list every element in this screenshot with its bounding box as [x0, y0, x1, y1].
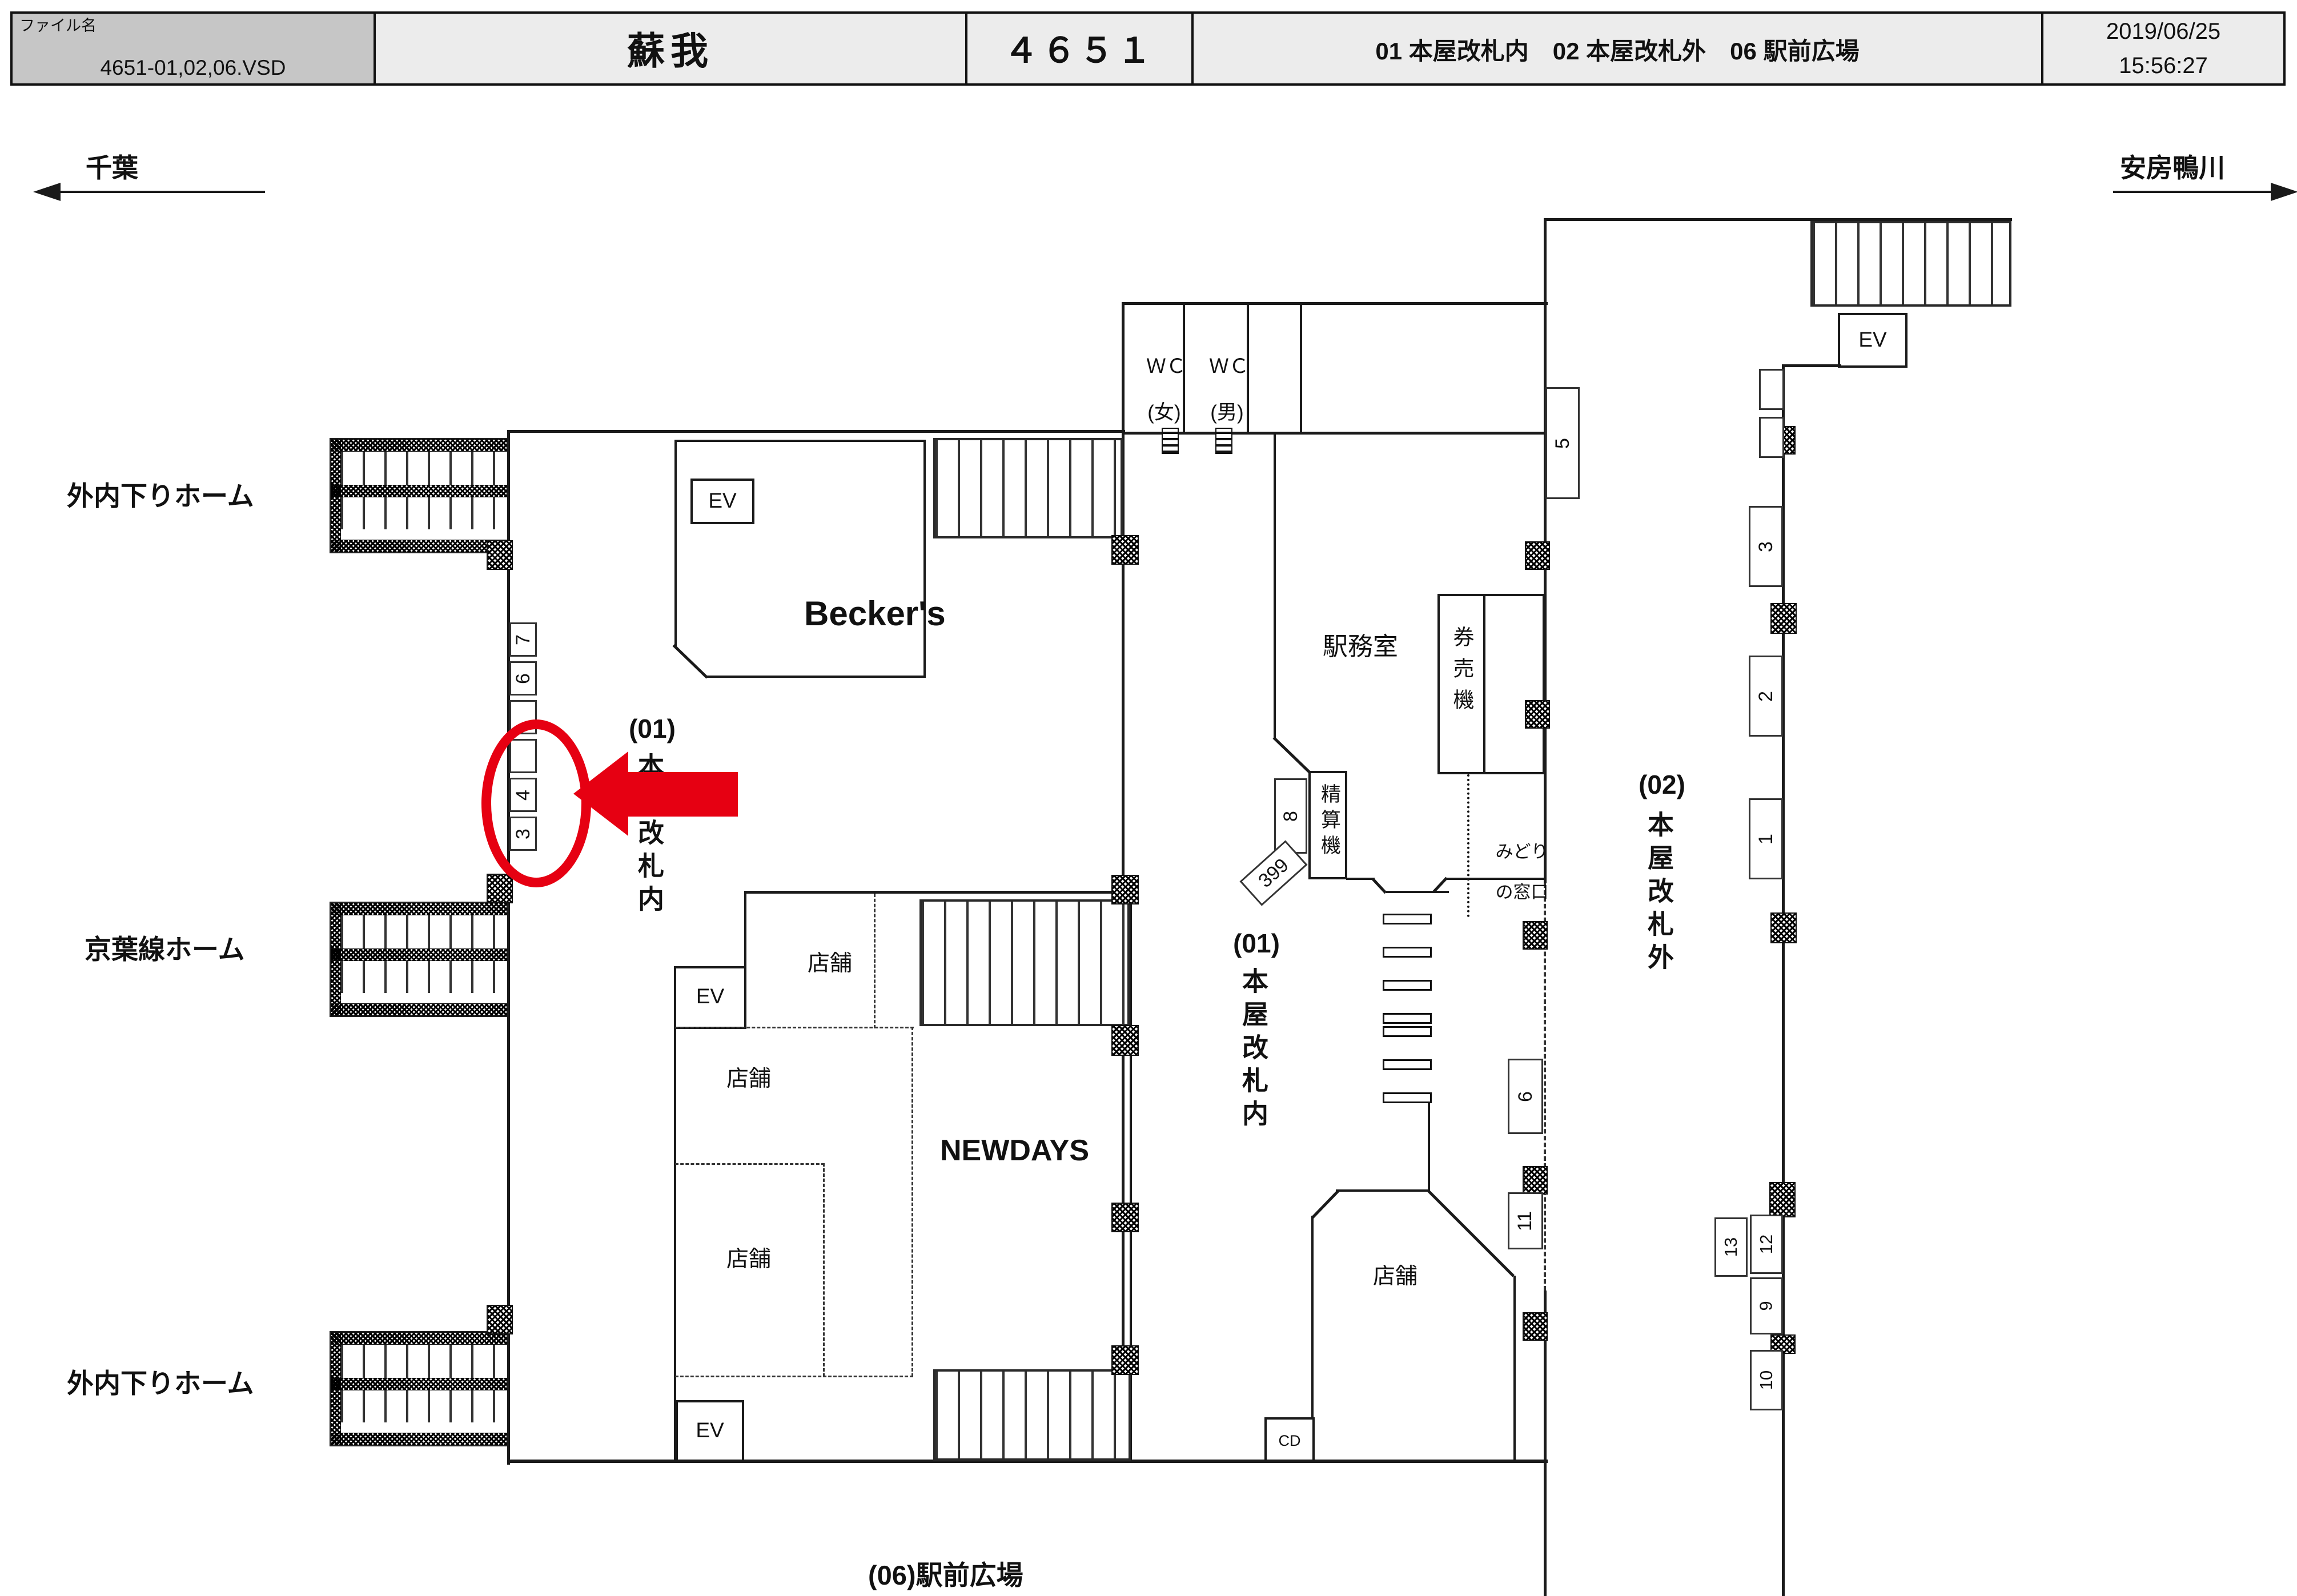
awakamogawa-arrow-head — [2271, 183, 2297, 201]
ticket-gate-bar — [1383, 1092, 1432, 1103]
wall-wc-bottom — [1122, 432, 1548, 435]
hatch — [1523, 921, 1548, 950]
ticket-gate-bar — [1383, 1013, 1432, 1024]
wc-door-hatch-2 — [1215, 428, 1232, 454]
stair-hatch-band — [331, 1378, 507, 1390]
stairs-bottom-middle — [933, 1369, 1131, 1461]
stairs-top-middle — [933, 438, 1123, 538]
ev-box-bottom: EV — [676, 1400, 744, 1462]
area01-left-number: (01) — [616, 714, 689, 744]
beckers-label: Becker's — [804, 594, 946, 633]
wc-women-text: (女) — [1147, 401, 1180, 424]
position-box-1: 1 — [1749, 798, 1783, 879]
wc-text: ＷＣ — [1209, 355, 1249, 377]
hatch — [1111, 1345, 1139, 1375]
partition-v1 — [874, 894, 876, 1028]
header-time: 15:56:27 — [2043, 53, 2283, 79]
partition-h3 — [675, 1376, 913, 1377]
midori-line1: みどり — [1495, 842, 1548, 862]
stairs-top-right — [1810, 221, 2011, 307]
beckers-wall-top — [674, 440, 926, 442]
header-locations-cell: 01 本屋改札内 02 本屋改札外 06 駅前広場 — [1191, 11, 2043, 86]
office-label: 駅務室 — [1323, 633, 1398, 662]
wall-midblock-bottom-2 — [1386, 891, 1449, 893]
stairs-lower-block — [919, 899, 1130, 1026]
position-box-6-mid: 6 — [1508, 1059, 1543, 1134]
lowerblock-wall-top — [744, 891, 1132, 894]
area01-mid-number: (01) — [1220, 928, 1293, 959]
position-6: 6 — [512, 673, 534, 684]
position-box-unlabeled-1 — [1759, 369, 1784, 410]
partition-v3 — [911, 1027, 913, 1377]
file-label: ファイル名 — [19, 17, 97, 35]
position-box-8: 8 — [1274, 778, 1307, 854]
chiba-arrow-head — [33, 183, 61, 201]
gate-connector — [1428, 1103, 1430, 1192]
midori-dotted — [1467, 774, 1469, 917]
header-date: 2019/06/25 — [2043, 18, 2283, 45]
wall-ev-shelf — [1782, 364, 1841, 367]
stair-treads — [341, 915, 507, 948]
shop-label-3: 店舗 — [726, 1247, 771, 1273]
direction-awakamogawa: 安房鴨川 — [2120, 153, 2225, 183]
ev-label: EV — [676, 984, 744, 1009]
shopbr-wall-top — [1336, 1189, 1430, 1192]
beckers-chamfer — [673, 644, 708, 679]
stair-hatch-band — [331, 1003, 507, 1016]
ticket-gate-bar — [1383, 980, 1432, 991]
position-box-5: 5 — [1545, 387, 1580, 499]
hatch — [1111, 1203, 1139, 1232]
midori-label: みどり の窓口 — [1476, 821, 1544, 923]
position-2: 2 — [1754, 691, 1777, 702]
office-wall-left — [1274, 434, 1276, 738]
position-box-11: 11 — [1508, 1192, 1543, 1249]
stair-treads — [341, 452, 507, 485]
office-chamfer — [1273, 737, 1311, 774]
hatch — [1770, 603, 1797, 634]
stair-treads — [341, 1390, 507, 1422]
header-station-cell: 蘇我 — [374, 11, 967, 86]
highlight-arrow-head — [573, 751, 628, 836]
midori-line2: の窓口 — [1495, 882, 1548, 902]
ticket-gate-bar — [1383, 1059, 1432, 1070]
chiba-arrow-line — [59, 191, 265, 193]
shopbr-diagonal — [1427, 1189, 1514, 1277]
stairs-platform-bottom — [330, 1331, 508, 1446]
position-box-3-right: 3 — [1749, 506, 1783, 587]
file-name: 4651-01,02,06.VSD — [13, 56, 374, 81]
partition-h2 — [675, 1163, 825, 1165]
position-1: 1 — [1754, 834, 1777, 845]
hatch — [487, 540, 513, 570]
area01-mid-text: 本屋改札内 — [1235, 967, 1272, 1133]
position-box-10: 10 — [1750, 1350, 1783, 1410]
shop-label-1: 店舗 — [808, 951, 852, 977]
newdays-label: NEWDAYS — [940, 1134, 1089, 1168]
position-12: 12 — [1756, 1235, 1777, 1254]
wall-midblock-bottom-1 — [1346, 878, 1375, 880]
position-10: 10 — [1756, 1370, 1777, 1390]
header-number-cell: ４６５１ — [965, 11, 1194, 86]
gate-recess-chamfer-l — [1371, 878, 1387, 894]
position-5: 5 — [1551, 438, 1573, 449]
stair-hatch-band — [331, 1332, 507, 1345]
position-box-unlabeled-2 — [1759, 417, 1784, 458]
ticket-machine-label: 券売機 — [1446, 626, 1477, 720]
cd-box: CD — [1264, 1417, 1315, 1462]
wall-midblock-bottom-3 — [1447, 878, 1545, 880]
wall-wc-top — [1122, 302, 1548, 305]
area02-text: 本屋改札外 — [1640, 811, 1678, 976]
hatch — [1769, 1182, 1796, 1217]
position-399: 399 — [1254, 854, 1293, 893]
platform-label-keiyo: 京葉線ホーム — [85, 934, 245, 965]
area02-number: (02) — [1625, 770, 1698, 800]
sheet-number: ４６５１ — [967, 31, 1191, 70]
awakamogawa-arrow-line — [2113, 191, 2273, 193]
hatch — [1111, 1025, 1139, 1056]
ticket-gate-bar — [1383, 914, 1432, 924]
header-file-cell: ファイル名 4651-01,02,06.VSD — [10, 11, 376, 86]
lowerblock-wall-topleft — [744, 891, 746, 968]
cd-label: CD — [1267, 1432, 1312, 1450]
plaza-label: (06)駅前広場 — [868, 1560, 1023, 1591]
platform-label-top: 外内下りホーム — [67, 481, 254, 512]
wc-men-text: (男) — [1210, 401, 1243, 424]
stairs-platform-top — [330, 438, 508, 553]
stair-treads — [341, 961, 507, 993]
fare-adjust-label: 精算機 — [1315, 783, 1344, 861]
partition-v2 — [823, 1163, 825, 1377]
ticket-gate-bar — [1383, 1026, 1432, 1037]
hatch — [1111, 535, 1139, 565]
stair-hatch-band — [331, 540, 507, 552]
hatch — [1525, 700, 1550, 729]
beckers-wall-right — [923, 440, 926, 678]
position-box-12: 12 — [1750, 1215, 1783, 1274]
ev-label: EV — [1840, 328, 1905, 352]
position-box-13: 13 — [1714, 1217, 1748, 1277]
beckers-wall-left — [674, 440, 677, 646]
partition-h1 — [675, 1027, 914, 1028]
direction-chiba: 千葉 — [86, 153, 138, 183]
shop-label-2: 店舗 — [726, 1067, 771, 1092]
ticket-machine-divider — [1483, 594, 1485, 774]
hatch — [1525, 541, 1550, 570]
wall-wc-div3 — [1300, 302, 1302, 435]
stair-hatch-band — [331, 948, 507, 961]
header-date-cell: 2019/06/25 15:56:27 — [2041, 11, 2286, 86]
ev-box-beckers: EV — [690, 479, 754, 524]
highlight-arrow-body — [627, 772, 738, 817]
stair-hatch-band — [331, 1433, 507, 1445]
ev-box-lowerblock: EV — [674, 966, 746, 1029]
beckers-wall-bottom — [707, 676, 926, 678]
position-13: 13 — [1721, 1237, 1741, 1257]
position-3-right: 3 — [1754, 541, 1777, 552]
wc-text: ＷＣ — [1146, 355, 1186, 377]
ticket-gate-bar — [1383, 947, 1432, 958]
position-9: 9 — [1756, 1301, 1777, 1310]
shop-label-4: 店舗 — [1373, 1264, 1417, 1290]
position-box-9: 9 — [1750, 1277, 1783, 1334]
position-11: 11 — [1514, 1211, 1536, 1231]
station-floor-plan: ファイル名 4651-01,02,06.VSD 蘇我 ４６５１ 01 本屋改札内… — [0, 0, 2297, 1596]
stair-treads — [341, 497, 507, 529]
ev-box-top-right: EV — [1838, 313, 1908, 368]
ev-label: EV — [693, 489, 752, 513]
hatch — [1523, 1312, 1548, 1341]
lowerblock-wall-left — [674, 1027, 676, 1462]
stair-hatch-band — [331, 903, 507, 915]
platform-label-bottom: 外内下りホーム — [67, 1368, 254, 1399]
stair-treads — [341, 1345, 507, 1378]
hatch — [487, 1305, 513, 1334]
wall-top-left-building — [507, 430, 1125, 433]
stairs-platform-middle — [330, 902, 508, 1017]
hatch — [1523, 1166, 1548, 1195]
position-6-mid: 6 — [1514, 1091, 1536, 1102]
hatch — [1770, 912, 1797, 943]
position-8: 8 — [1279, 811, 1302, 822]
shopbr-wall-right — [1513, 1276, 1516, 1462]
position-7: 7 — [512, 634, 534, 645]
header-locations: 01 本屋改札内 02 本屋改札外 06 駅前広場 — [1194, 38, 2041, 65]
hatch — [1111, 875, 1139, 904]
ev-label: EV — [678, 1418, 742, 1443]
hatch — [487, 874, 513, 903]
station-name: 蘇我 — [376, 30, 965, 73]
stair-hatch-band — [331, 439, 507, 452]
position-box-7: 7 — [509, 622, 537, 657]
stair-hatch-band — [331, 485, 507, 497]
position-box-6: 6 — [509, 661, 537, 696]
shopbr-chamfer — [1311, 1190, 1339, 1219]
wc-door-hatch-1 — [1162, 428, 1179, 454]
position-box-2: 2 — [1749, 656, 1783, 737]
